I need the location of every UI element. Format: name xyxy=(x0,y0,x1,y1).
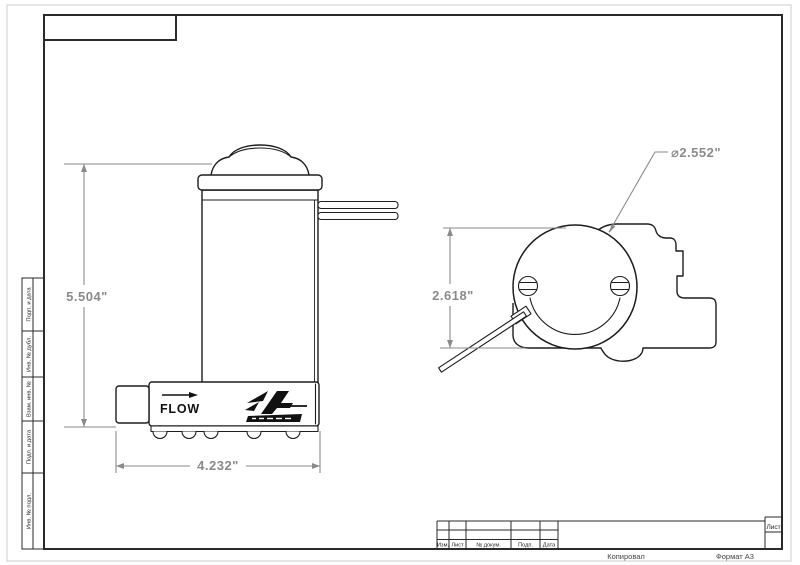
inlet-port xyxy=(116,386,149,423)
title-col-list: Лист xyxy=(451,543,464,549)
screw-left xyxy=(519,277,538,296)
format-label: Формат А3 xyxy=(716,552,754,561)
title-col-date: Дата xyxy=(543,543,556,549)
flow-marking: FLOW xyxy=(160,392,200,416)
title-col-doc: № докум. xyxy=(476,543,501,549)
title-col-izm: Изм. xyxy=(437,543,449,549)
screw-right xyxy=(611,277,630,296)
dim-height-side: 5.504" xyxy=(66,289,108,304)
dim-diameter: ⌀2.552" xyxy=(671,145,721,160)
title-col-sign: Подп. xyxy=(518,543,533,549)
left-strip-label: Подп. и дата xyxy=(26,287,32,322)
left-strip-label: Взам. инв. № xyxy=(26,381,32,417)
left-strip-label: Инв. № подл. xyxy=(26,493,32,529)
drawing-sheet: Подп. и дата Инв. № дубл. Взам. инв. № П… xyxy=(0,0,800,565)
left-strip-label: Подп. и дата xyxy=(26,429,32,464)
copied-label: Копировал xyxy=(607,552,645,561)
technical-drawing: Подп. и дата Инв. № дубл. Взам. инв. № П… xyxy=(0,0,800,565)
dim-width-side: 4.232" xyxy=(197,458,239,473)
dim-height-end: 2.618" xyxy=(432,288,474,303)
pump-motor-body xyxy=(202,190,318,383)
sheet-number-label: Лист xyxy=(766,524,780,531)
flow-label: FLOW xyxy=(160,402,200,416)
left-strip-label: Инв. № дубл. xyxy=(26,336,32,372)
